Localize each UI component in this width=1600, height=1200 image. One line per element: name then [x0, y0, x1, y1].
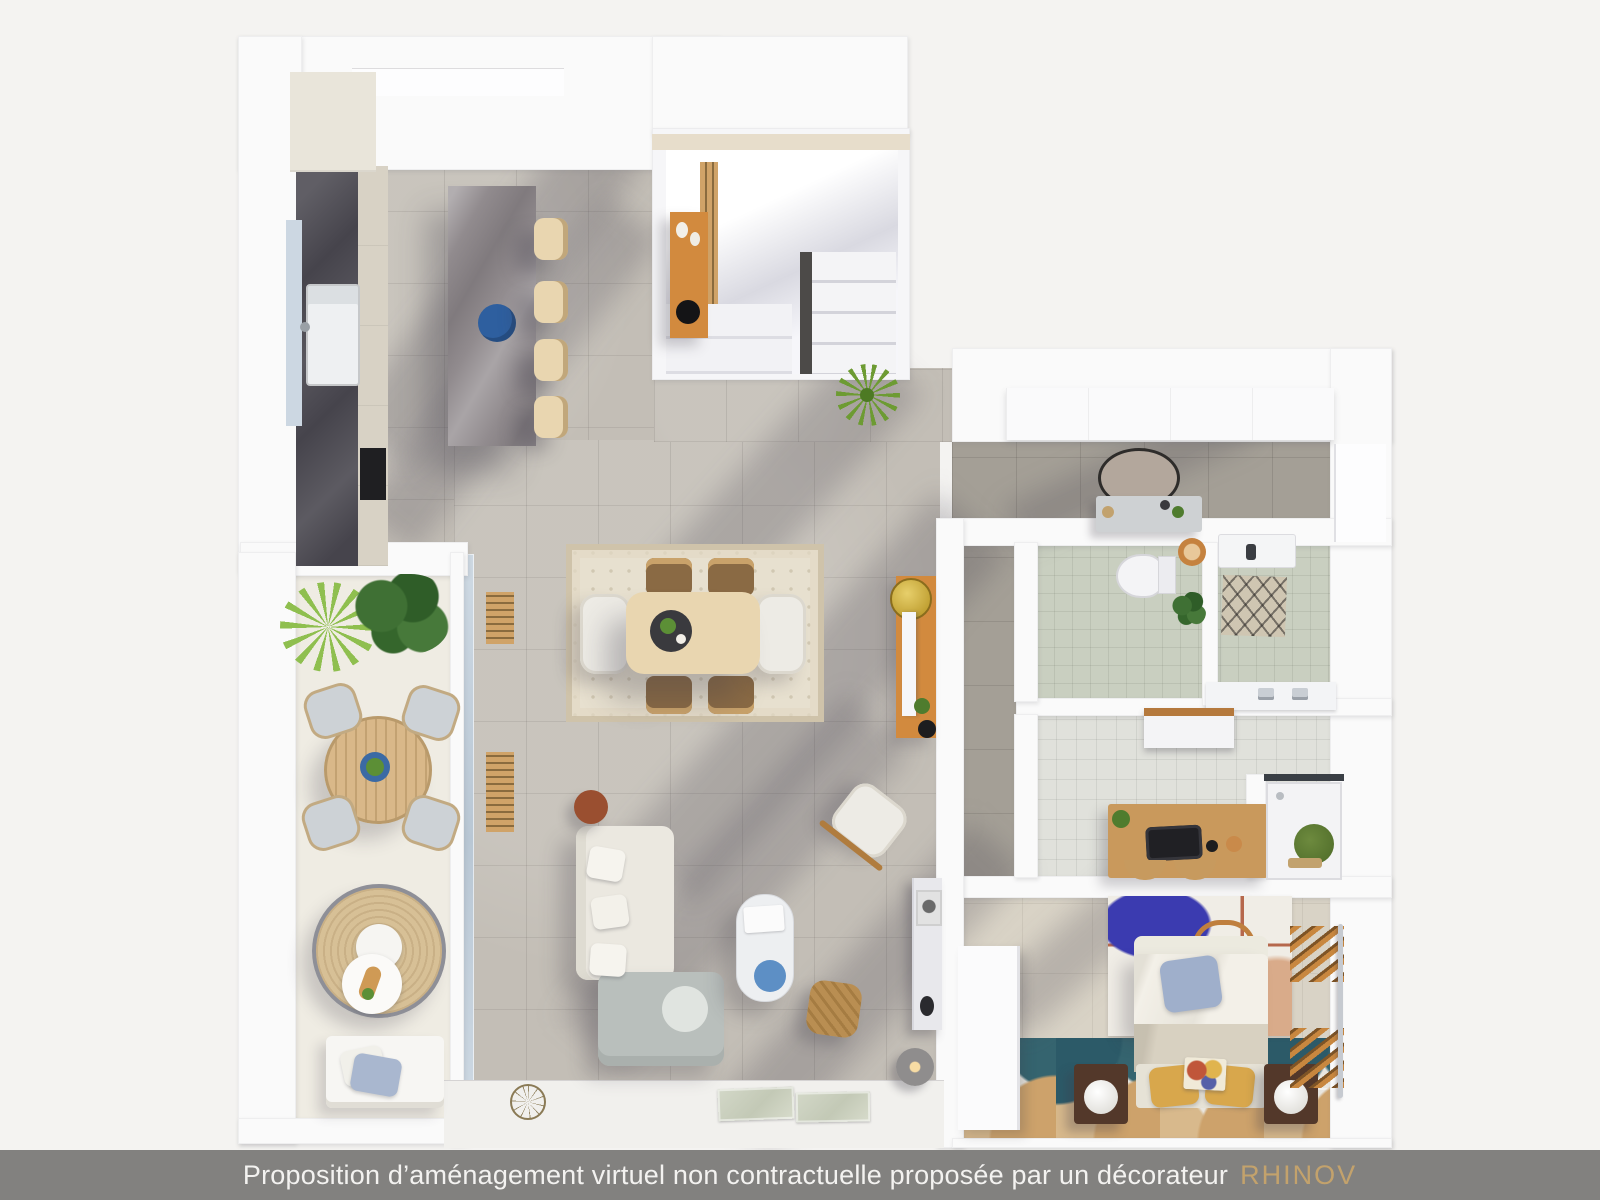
kitchen-tall-cabinet	[290, 72, 376, 172]
dining-table	[626, 592, 760, 674]
dining-chair	[708, 676, 754, 714]
island-blue-tray	[478, 304, 516, 342]
bar-stool	[534, 339, 568, 381]
clothes-hangers	[1290, 926, 1344, 982]
tv-cabinet-vase	[920, 996, 934, 1016]
brass-caddy	[1288, 858, 1322, 868]
rattan-basket	[1178, 538, 1206, 566]
sideboard-bowl	[676, 300, 700, 324]
vanity-plant	[1172, 506, 1184, 518]
kitchen-wall-panel	[286, 220, 302, 426]
abstract-art-piece	[1183, 1057, 1227, 1091]
dining-chair	[646, 558, 692, 596]
bar-stool	[534, 396, 568, 438]
kitchen-cabinet-front	[358, 166, 388, 566]
console-plant	[914, 698, 930, 714]
vanity-gold-dish	[1102, 506, 1114, 518]
centerpiece-plant	[660, 618, 676, 634]
jute-pouf	[804, 979, 863, 1040]
bed-pillow-blue	[1159, 954, 1224, 1014]
shower-glass	[1264, 774, 1344, 781]
botanical-print	[717, 1087, 794, 1122]
stair-treads	[812, 252, 896, 374]
laundry-faucet	[1246, 544, 1256, 560]
bar-stool	[534, 281, 568, 323]
plant-center	[860, 388, 874, 402]
sofa-round-cushion	[662, 986, 708, 1032]
outer-wall-balcony-bottom	[238, 1118, 470, 1144]
wall-above-stairs	[652, 36, 908, 136]
sofa-pillow	[590, 894, 630, 931]
skylight	[352, 68, 564, 96]
desk-screen	[1145, 825, 1203, 862]
radiator	[486, 592, 514, 644]
floor-lamp	[896, 1048, 934, 1086]
window-mullion	[450, 552, 464, 1144]
toilet-cistern	[1158, 556, 1176, 594]
planter-plant	[366, 758, 384, 776]
terracotta-side-table	[574, 790, 608, 824]
desk-plant	[1112, 810, 1130, 828]
wall-bedroom-bottom	[952, 1138, 1392, 1148]
berber-rug	[1221, 575, 1287, 637]
sideboard-vase	[676, 222, 688, 238]
dining-chair	[708, 558, 754, 596]
kitchen-sink	[306, 284, 360, 386]
dining-armchair	[580, 594, 630, 674]
sideboard-vase	[690, 232, 700, 246]
framed-portrait	[916, 890, 942, 926]
decorative-wheel-clock	[510, 1084, 546, 1120]
vanity-bottle	[1160, 500, 1170, 510]
brand-name: RHINOV	[1240, 1160, 1357, 1191]
console-pot	[918, 720, 936, 738]
coffee-table-blue-tray	[754, 960, 786, 992]
sofa-pillow	[589, 943, 627, 977]
wall-bathroom-column	[1014, 714, 1038, 878]
wall-toilet-column	[1014, 542, 1038, 702]
leaning-frame	[902, 612, 916, 716]
crate-sphere-lamp	[1084, 1080, 1118, 1114]
disclaimer-bar: Proposition d’aménagement virtuel non co…	[0, 1150, 1600, 1200]
bedroom-wardrobe	[958, 946, 1020, 1130]
sofa-pillow	[585, 845, 626, 883]
radiator	[486, 752, 514, 832]
bar-stool	[534, 218, 568, 260]
floor-plan-render: Proposition d’aménagement virtuel non co…	[0, 0, 1600, 1200]
clothes-hangers	[1290, 1028, 1344, 1088]
faucet	[300, 322, 310, 332]
board-greens	[362, 988, 374, 1000]
desk-vase	[1226, 836, 1242, 852]
tap	[1258, 688, 1274, 700]
stair-stringer	[800, 252, 812, 374]
tap	[1292, 688, 1308, 700]
dining-armchair	[756, 594, 806, 674]
botanical-print	[796, 1091, 871, 1122]
laundry-sink-counter	[1218, 534, 1296, 568]
stair-top-wall	[652, 134, 910, 150]
oven	[360, 448, 386, 500]
hall-closet-door	[1334, 444, 1386, 542]
balcony-leafy-plant	[352, 574, 450, 654]
toilet-plant	[1172, 592, 1206, 626]
clothes-rail	[1338, 924, 1343, 1098]
centerpiece-cup	[676, 634, 686, 644]
disclaimer-text: Proposition d’aménagement virtuel non co…	[243, 1160, 1228, 1191]
coffee-table-books	[743, 905, 785, 934]
shower-drain	[1276, 792, 1284, 800]
bench-pillow-blue	[349, 1052, 403, 1098]
hallway-sideboard	[1006, 388, 1334, 440]
dining-chair	[646, 676, 692, 714]
desk-cup	[1206, 840, 1218, 852]
wall-hung-cabinet	[1144, 708, 1234, 748]
